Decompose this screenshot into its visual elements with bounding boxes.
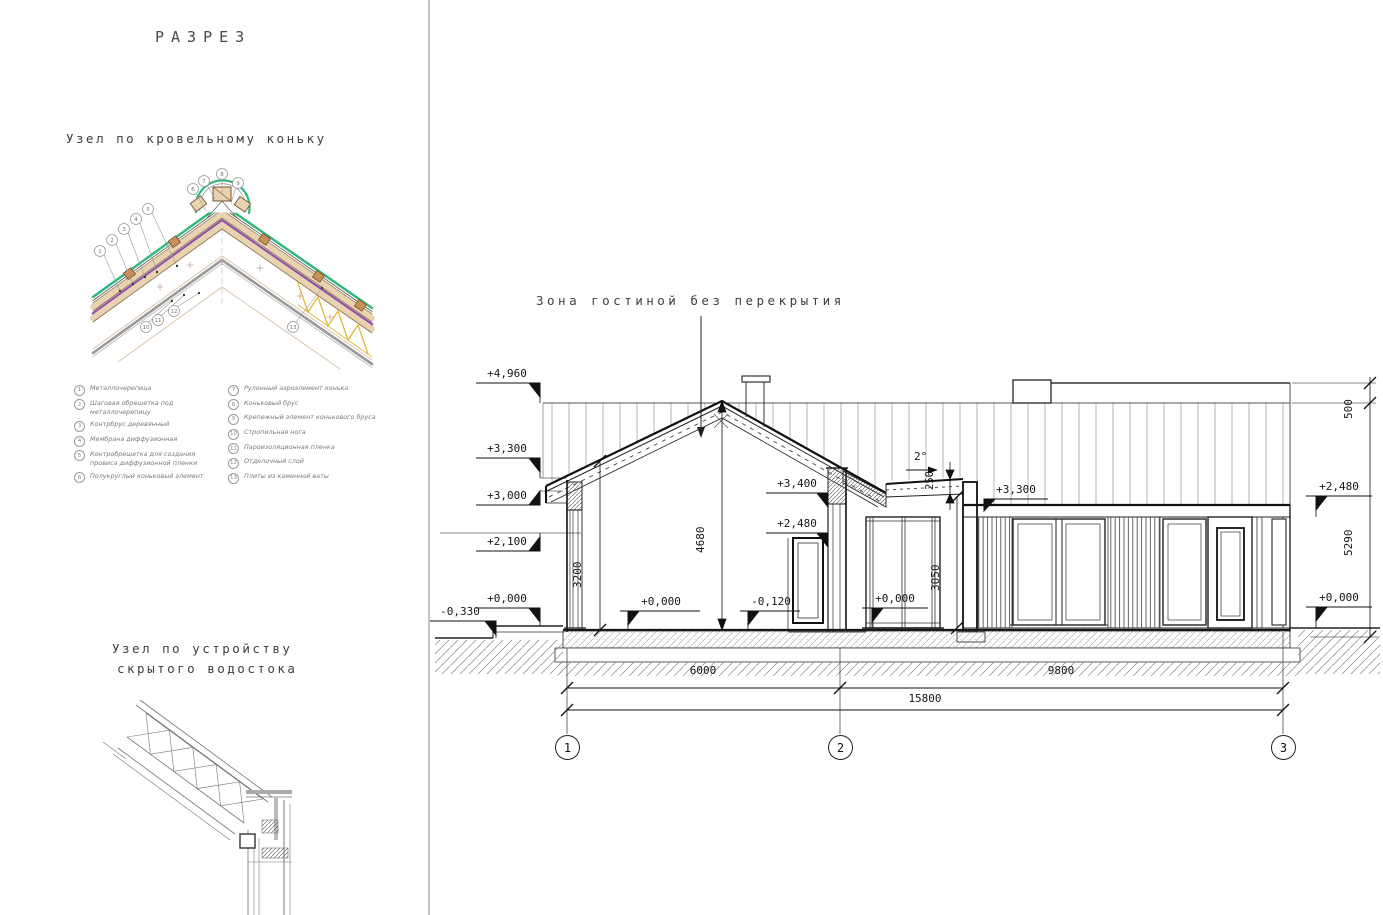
legend-num-3: 3 — [74, 421, 85, 432]
legend-item-2: 2Шаговая обрешетка под металлочерепицу — [74, 399, 224, 418]
ridge-callout-5: 5 — [146, 207, 150, 213]
dim-5290: 5290 — [1342, 530, 1355, 557]
ridge-callout-8: 8 — [220, 172, 224, 178]
legend-item-3: 3Контрбрус деревянный — [74, 420, 224, 432]
elevation-0-center: +0,000 — [622, 595, 700, 608]
elevation-2480-right: +2,480 — [1306, 480, 1372, 493]
elevation-4960: +4,960 — [476, 367, 538, 380]
legend-item-1: 1Металлочерепица — [74, 384, 224, 396]
elevation-3000: +3,000 — [476, 489, 538, 502]
ridge-callout-1: 1 — [98, 249, 102, 255]
ridge-callout-3: 3 — [122, 227, 126, 233]
elevation-minus330: -0,330 — [428, 605, 492, 618]
dim-4680: 4680 — [694, 527, 707, 554]
legend-num-13: 13 — [228, 473, 239, 484]
grid-axis-3-label: 3 — [1280, 741, 1287, 755]
elevation-0-right: +0,000 — [1306, 591, 1372, 604]
zone-label: Зона гостиной без перекрытия — [536, 293, 845, 308]
legend-item-7: 7Рулонный аэроэлемент конька — [228, 384, 380, 396]
grid-axis-2: 2 — [828, 735, 853, 760]
legend-item-10: 10Стропильная нога — [228, 428, 380, 440]
drain-detail-title-line2: скрытого водостока — [117, 661, 297, 676]
ridge-callout-9: 9 — [236, 181, 240, 187]
slope-label: 2° — [914, 450, 927, 463]
section-drawing — [430, 316, 1380, 734]
legend-text-9: Крепежный элемент конькового бруса — [244, 413, 376, 422]
legend-num-12: 12 — [228, 458, 239, 469]
elevation-0-left: +0,000 — [476, 592, 538, 605]
elevation-2100: +2,100 — [476, 535, 538, 548]
drain-detail-drawing — [103, 700, 292, 915]
legend-num-2: 2 — [74, 399, 85, 410]
ridge-callout-11: 11 — [155, 318, 162, 324]
ridge-callout-12: 12 — [171, 309, 178, 315]
grid-axis-3: 3 — [1271, 735, 1296, 760]
dim-15800: 15800 — [888, 692, 962, 705]
elevation-minus120: -0,120 — [742, 595, 800, 608]
sheet-title: РАЗРЕЗ — [155, 28, 251, 46]
ridge-callout-13: 13 — [290, 325, 297, 331]
grid-axis-1: 1 — [555, 735, 580, 760]
elevation-3300-left: +3,300 — [476, 442, 538, 455]
legend-num-9: 9 — [228, 414, 239, 425]
legend-num-6: 6 — [74, 472, 85, 483]
legend-num-7: 7 — [228, 385, 239, 396]
legend-num-10: 10 — [228, 429, 239, 440]
legend-item-4: 4Мембрана диффузионная — [74, 435, 224, 447]
legend-item-13: 13Плиты из каменной ваты — [228, 472, 380, 484]
legend-num-1: 1 — [74, 385, 85, 396]
legend-text-13: Плиты из каменной ваты — [244, 472, 329, 481]
legend-text-3: Контрбрус деревянный — [90, 420, 169, 429]
ridge-callout-6: 6 — [191, 187, 195, 193]
legend-num-11: 11 — [228, 443, 239, 454]
ridge-callout-2: 2 — [110, 238, 114, 244]
legend-num-4: 4 — [74, 436, 85, 447]
legend-text-5: Контробрешетка для создания провиса дифф… — [90, 450, 224, 469]
legend-item-9: 9Крепежный элемент конькового бруса — [228, 413, 380, 425]
grid-axis-2-label: 2 — [837, 741, 844, 755]
ridge-detail-title: Узел по кровельному коньку — [66, 131, 327, 146]
legend-text-2: Шаговая обрешетка под металлочерепицу — [90, 399, 224, 418]
drawing-sheet: 1 2 3 4 5 6 7 8 9 10 11 12 13 — [0, 0, 1383, 915]
legend-text-10: Стропильная нога — [244, 428, 306, 437]
legend-num-8: 8 — [228, 399, 239, 410]
legend-text-11: Пароизоляционная пленка — [244, 443, 335, 452]
grid-axis-1-label: 1 — [564, 741, 571, 755]
ridge-callout-7: 7 — [202, 179, 206, 185]
legend-text-12: Отделочный слой — [244, 457, 304, 466]
legend-text-4: Мембрана диффузионная — [90, 435, 177, 444]
legend-text-1: Металлочерепица — [90, 384, 151, 393]
ridge-callout-4: 4 — [134, 217, 138, 223]
dim-3050: 3050 — [929, 565, 942, 592]
ridge-legend-left-column: 1Металлочерепица 2Шаговая обрешетка под … — [74, 384, 224, 483]
legend-text-8: Коньковый брус — [244, 399, 298, 408]
legend-item-5: 5Контробрешетка для создания провиса диф… — [74, 450, 224, 469]
legend-item-12: 12Отделочный слой — [228, 457, 380, 469]
drain-detail-title-line1: Узел по устройству — [112, 641, 292, 656]
legend-item-11: 11Пароизоляционная пленка — [228, 443, 380, 455]
legend-item-8: 8Коньковый брус — [228, 399, 380, 411]
dim-500: 500 — [1342, 399, 1355, 419]
elevation-0-porch: +0,000 — [862, 592, 928, 605]
elevation-3300-right: +3,300 — [984, 483, 1048, 496]
ridge-detail-drawing: 1 2 3 4 5 6 7 8 9 10 11 12 13 — [93, 169, 372, 370]
ridge-legend-right-column: 7Рулонный аэроэлемент конька 8Коньковый … — [228, 384, 380, 484]
dim-3200: 3200 — [571, 562, 584, 589]
dim-250: 250 — [924, 471, 936, 490]
elevation-3400: +3,400 — [766, 477, 828, 490]
legend-num-5: 5 — [74, 450, 85, 461]
elevation-2480-center: +2,480 — [766, 517, 828, 530]
legend-item-6: 6Полукруглый коньковый элемент — [74, 472, 224, 484]
legend-text-7: Рулонный аэроэлемент конька — [244, 384, 348, 393]
dim-6000: 6000 — [670, 664, 736, 677]
legend-text-6: Полукруглый коньковый элемент — [90, 472, 204, 481]
dim-9800: 9800 — [1028, 664, 1094, 677]
ridge-callout-10: 10 — [143, 325, 150, 331]
